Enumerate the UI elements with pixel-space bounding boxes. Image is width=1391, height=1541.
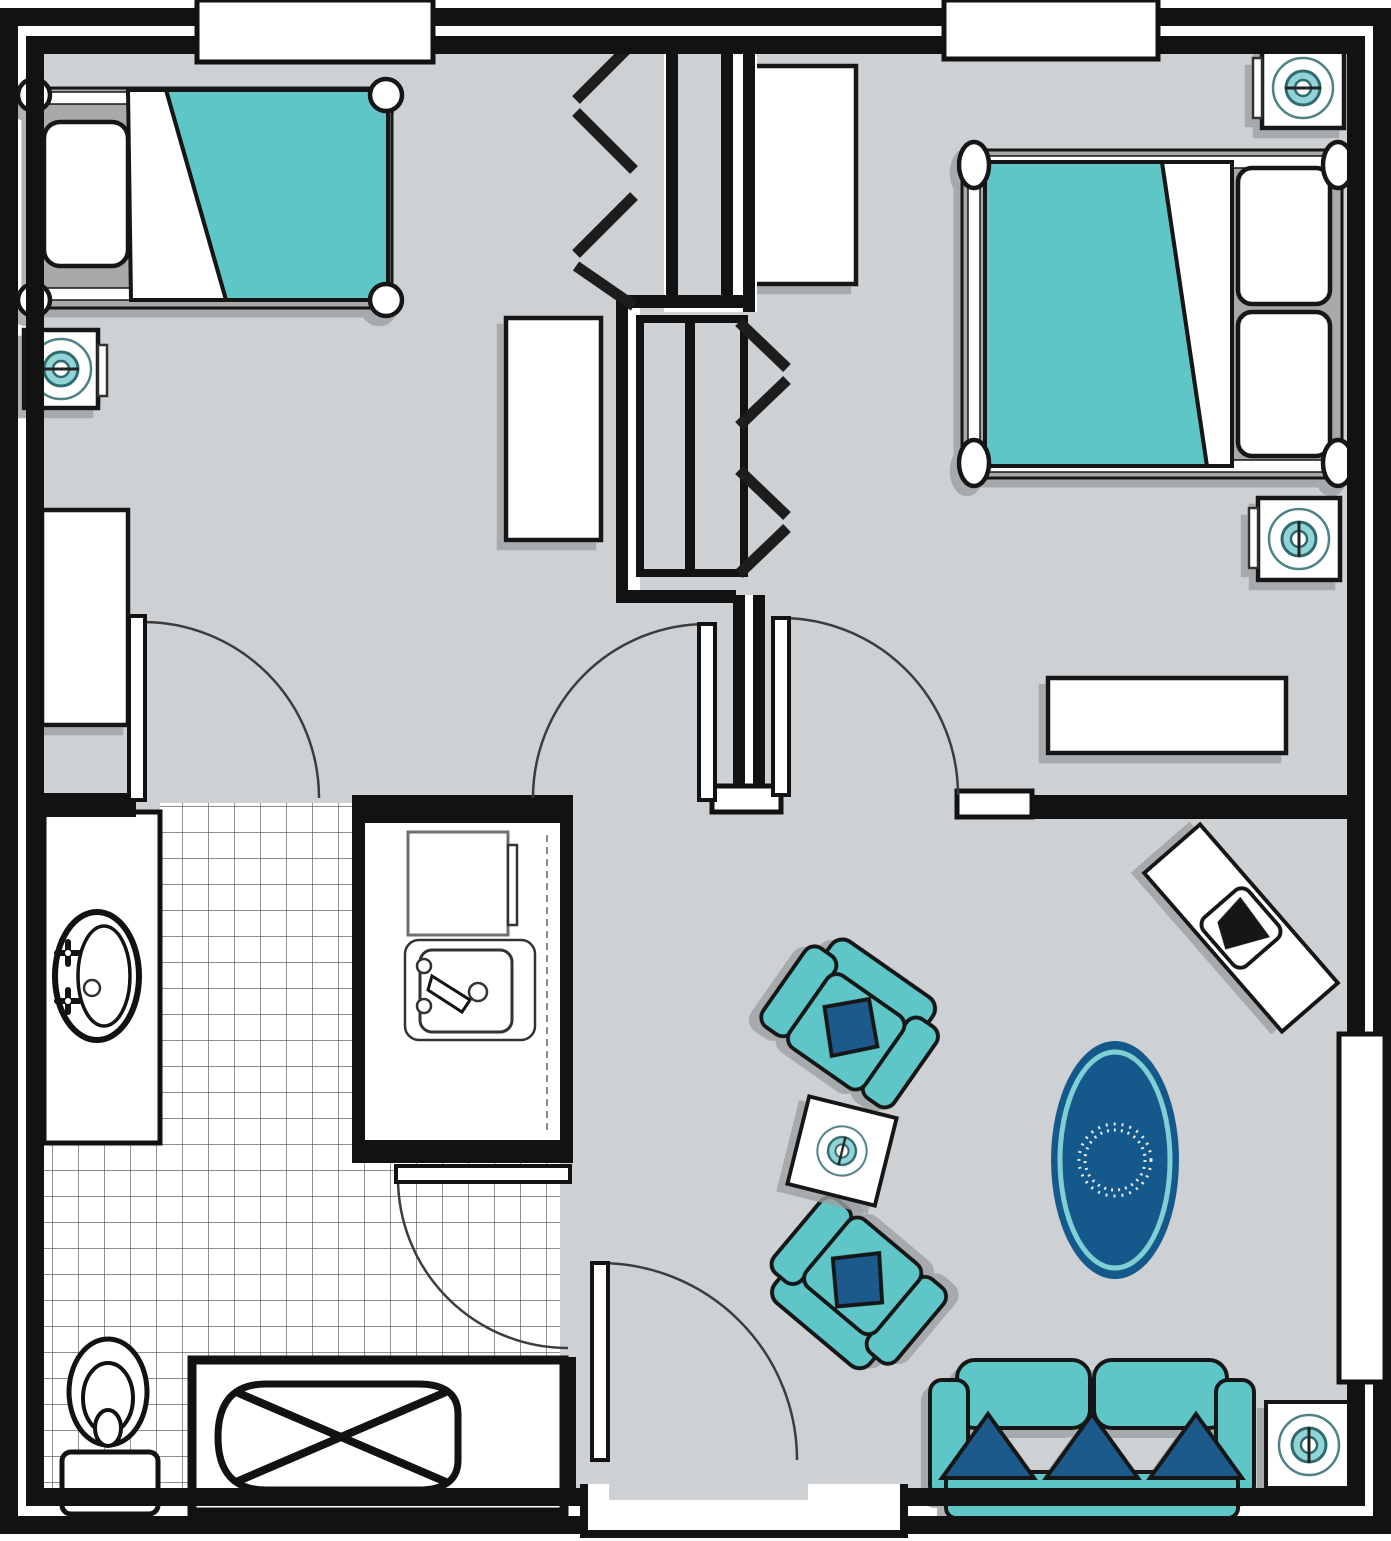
bedroom1-door — [129, 616, 145, 800]
refrigerator — [408, 832, 508, 935]
double-bed-pillow-bottom — [1238, 312, 1330, 456]
sink-drain — [84, 980, 100, 996]
dresser-bedroom1-closet — [506, 318, 601, 540]
dresser-bedroom1-left — [42, 510, 128, 725]
oval-rug — [1051, 1041, 1179, 1279]
bathroom-sink — [55, 912, 139, 1040]
nightstand-bedroom2-top — [1253, 48, 1344, 128]
dresser-bedroom2 — [752, 66, 856, 284]
bathroom-door — [396, 1166, 570, 1182]
hall-left-door — [699, 624, 715, 800]
twin-bed — [18, 79, 402, 316]
kitchenette — [352, 795, 573, 1163]
window-right-wall — [1339, 1034, 1385, 1382]
bedroom2-wall-cap — [957, 791, 1032, 817]
lamp-icon — [1279, 1415, 1339, 1475]
lamp-icon — [1273, 58, 1333, 118]
console-bench-bedroom2 — [1048, 678, 1286, 753]
entry-door — [592, 1263, 608, 1460]
kitchen-sink-drain — [469, 983, 487, 1001]
twin-bed-pillow — [44, 122, 128, 266]
window-top-left — [197, 0, 433, 62]
lamp-icon — [1269, 509, 1329, 569]
nightstand-bedroom2-bottom — [1249, 498, 1340, 580]
bedroom2-bottom-wall — [1030, 795, 1355, 819]
double-bed-pillow-top — [1238, 168, 1330, 304]
bathroom-right-wall — [560, 1357, 576, 1497]
hall-wall-cap — [712, 786, 781, 812]
window-top-right — [944, 0, 1158, 59]
refrigerator-handle — [508, 845, 517, 925]
kitchen-sink — [405, 940, 535, 1040]
floor-plan-page — [0, 0, 1391, 1541]
bedroom2-door — [773, 618, 789, 795]
floor-plan-svg — [0, 0, 1391, 1541]
double-bed — [959, 142, 1353, 486]
bedroom1-bottom-wall — [44, 793, 136, 817]
side-table-right — [1266, 1402, 1352, 1498]
side-table-tilted — [787, 1096, 896, 1205]
